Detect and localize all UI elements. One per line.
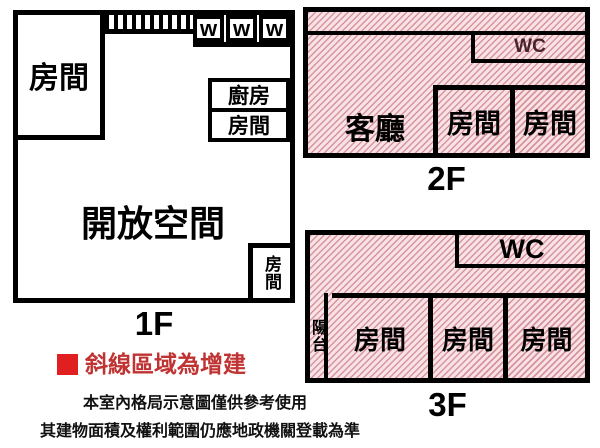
room-bedroom-topleft: 房間 <box>18 15 105 140</box>
floor-label-1f: 1F <box>13 305 295 343</box>
room-label: 廚房 <box>228 80 270 110</box>
legend-text: 斜線區域為增建 <box>85 353 246 376</box>
room-balcony: 陽台 <box>310 293 328 378</box>
room-wc-3f: WC <box>455 235 585 268</box>
room-label: 房間 <box>447 102 501 141</box>
room-label: 房間 <box>442 320 494 357</box>
toilet-stall: w <box>226 15 257 42</box>
room-bedroom-1: 房間 <box>433 85 510 153</box>
room-label: 房間 <box>228 110 270 140</box>
floor-label-2f: 2F <box>303 160 590 198</box>
floor-plan-1f: 房間 w w w 廚房 房間 開放空間 房間 <box>13 10 295 303</box>
toilet-stall-label: w <box>200 18 217 40</box>
room-bedroom-2: 房間 <box>510 85 585 153</box>
living-room-label: 客廳 <box>316 104 434 148</box>
room-label: 房間 <box>523 102 577 141</box>
room-label: WC <box>514 36 546 58</box>
room-bedroom-2: 房間 <box>433 293 508 378</box>
room-label: 房間 <box>29 53 89 97</box>
stairs-hatch <box>105 15 193 34</box>
room-bedroom-right: 房間 <box>208 108 290 142</box>
room-label: 房間 <box>520 320 572 357</box>
legend-red-square-icon <box>57 354 78 375</box>
toilet-stall-label: w <box>233 18 250 40</box>
room-kitchen: 廚房 <box>208 78 290 112</box>
room-label: WC <box>500 234 545 265</box>
open-space-label: 開放空間 <box>33 195 273 247</box>
room-bedroom-corner: 房間 <box>248 243 290 298</box>
legend-addition: 斜線區域為增建 <box>57 353 246 376</box>
room-wc-2f: WC <box>471 35 585 63</box>
toilet-stall: w <box>193 15 224 42</box>
disclaimer-line-1: 本室內格局示意圖僅供參考使用 <box>25 389 365 413</box>
room-label: 陽台 <box>305 319 329 353</box>
room-bedroom-1: 房間 <box>332 293 433 378</box>
toilet-stall: w <box>259 15 290 42</box>
room-label: 房間 <box>354 320 406 357</box>
room-label: 房間 <box>259 255 284 291</box>
disclaimer-line-2: 其建物面積及權利範圍仍應地政機關登載為準 <box>18 417 382 441</box>
room-bedroom-3: 房間 <box>508 293 585 378</box>
floor-plan-2f: WC 客廳 房間 房間 <box>303 7 590 158</box>
floor-plan-3f: WC 陽台 房間 房間 房間 <box>305 230 590 383</box>
toilet-stall-row: w w w <box>193 15 290 47</box>
toilet-stall-label: w <box>266 18 283 40</box>
kitchen-bedroom-stack: 廚房 房間 <box>208 78 290 142</box>
